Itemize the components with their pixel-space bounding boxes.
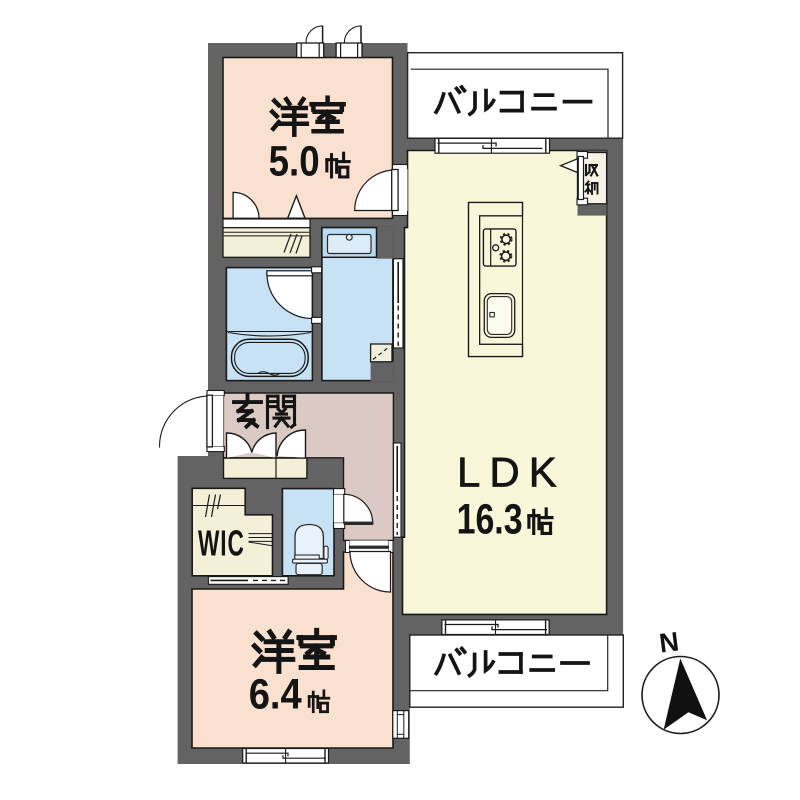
svg-text:N: N <box>658 626 681 658</box>
svg-text:16.3: 16.3 <box>457 496 523 544</box>
svg-text:LDK: LDK <box>457 449 566 496</box>
svg-text:5.0: 5.0 <box>269 138 320 186</box>
svg-text:WIC: WIC <box>198 524 245 564</box>
svg-text:6.4: 6.4 <box>249 671 302 719</box>
